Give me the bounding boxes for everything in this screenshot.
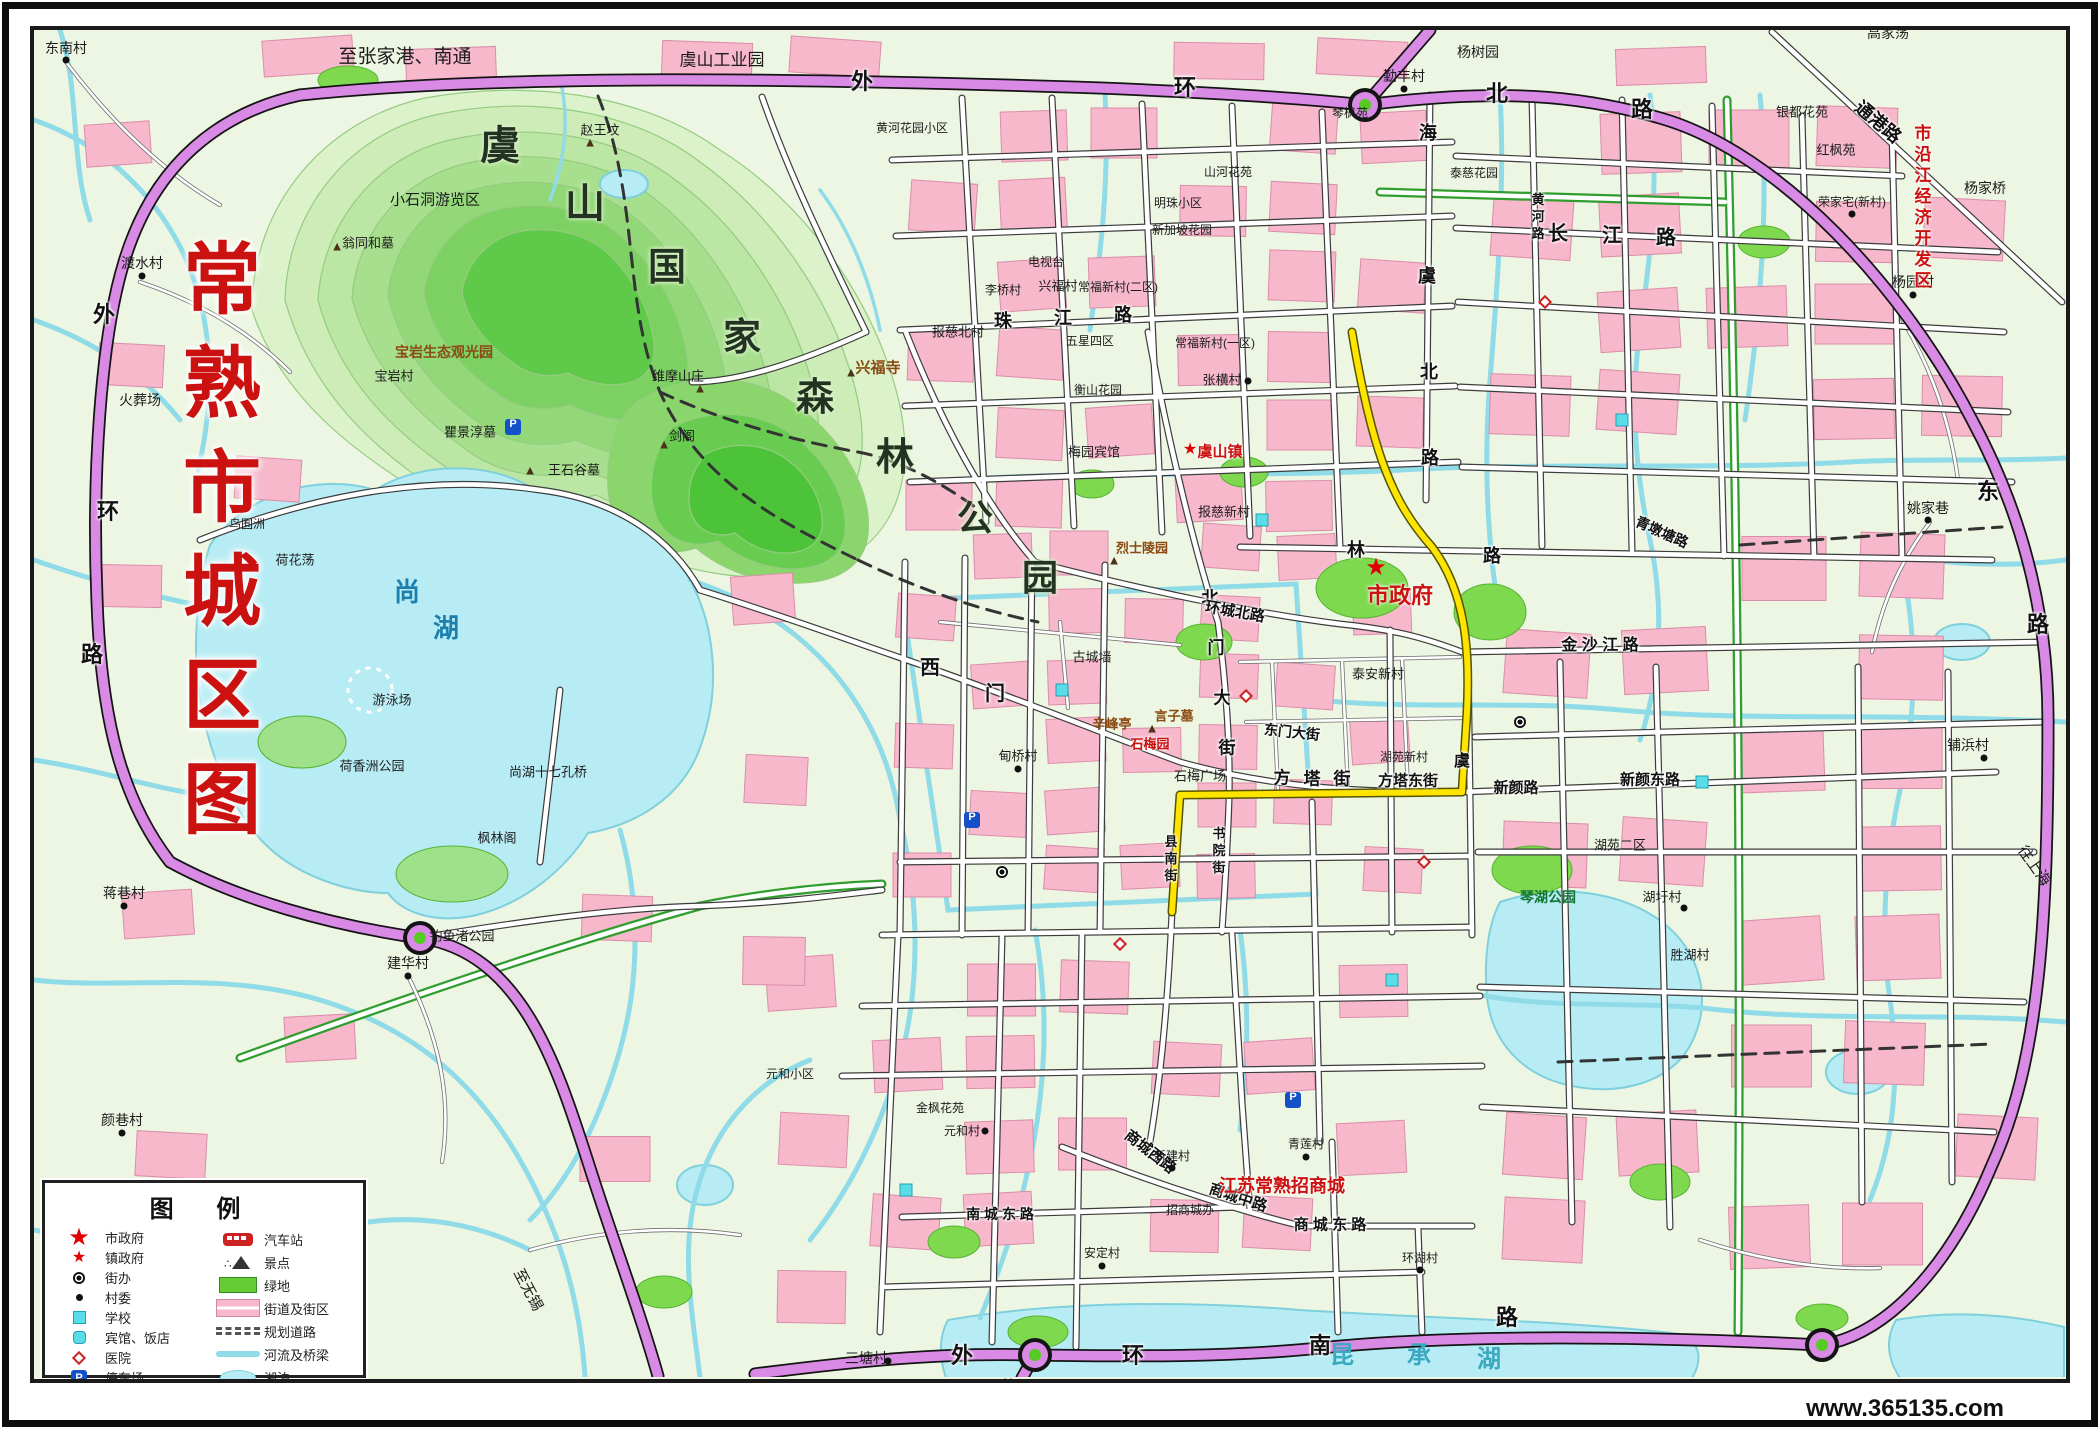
school-icon [73,1311,86,1324]
lake-icon [220,1370,256,1384]
legend-item: 湖泊 [212,1366,363,1383]
legend-icon-cell [53,1272,105,1284]
map-canvas[interactable]: 至张家港、南通虞山工业园东南村高家荡杨树园勤丰村银都花苑红枫苑荣家宅(新村)杨园… [30,26,2070,1383]
legend-label: 街办 [105,1268,131,1287]
legend-item: 街办 [53,1268,204,1287]
legend-box: 图 例 ★市政府★镇政府街办村委学校宾馆、饭店医院P停车场 汽车站景点绿地街道及… [42,1180,366,1378]
legend-label: 绿地 [264,1276,290,1295]
legend-icon-cell [212,1233,264,1246]
map-label: 至苏州 [984,1380,1032,1383]
lake-corner [1889,1314,2064,1378]
legend-icon-cell [212,1277,264,1293]
legend-title: 图 例 [45,1189,363,1224]
bus-icon [223,1233,253,1246]
legend-label: 河流及桥梁 [264,1345,329,1364]
green-icon [219,1277,257,1293]
legend-label: 湖泊 [264,1368,290,1384]
legend-icon-cell [53,1353,105,1363]
map-inner: 至张家港、南通虞山工业园东南村高家荡杨树园勤丰村银都花苑红枫苑荣家宅(新村)杨园… [30,26,2070,1383]
legend-icon-cell [212,1327,264,1335]
legend-item: 宾馆、饭店 [53,1328,204,1347]
legend-item: 河流及桥梁 [212,1343,363,1365]
legend-label: 医院 [105,1348,131,1367]
legend-label: 村委 [105,1288,131,1307]
legend-item: 街道及街区 [212,1297,363,1319]
legend-column-right: 汽车站景点绿地街道及街区规划道路河流及桥梁湖泊 [204,1228,363,1383]
legend-icon-cell [53,1294,105,1301]
legend-icon-cell: P [53,1370,105,1384]
legend-item: 医院 [53,1348,204,1367]
legend-icon-cell [212,1299,264,1317]
office-icon [73,1272,85,1284]
parking-icon: P [71,1370,87,1384]
legend-item: 景点 [212,1251,363,1273]
star-big-icon: ★ [68,1226,90,1250]
dot-icon [76,1294,83,1301]
legend-icon-cell [53,1311,105,1324]
blocks-icon [216,1299,260,1317]
legend-item: 汽车站 [212,1228,363,1250]
legend-icon-cell: ★ [53,1250,105,1266]
star-small-icon: ★ [72,1250,86,1266]
legend-item: 绿地 [212,1274,363,1296]
map-label: 农副产品交易城 [1097,1381,1202,1384]
legend-item: ★镇政府 [53,1248,204,1267]
legend-label: 宾馆、饭店 [105,1328,170,1347]
legend-icon-cell [212,1351,264,1357]
legend-icon-cell [212,1255,264,1269]
hotel-icon [73,1331,86,1344]
legend-label: 停车场 [105,1368,144,1383]
planned-icon [216,1327,260,1335]
legend-label: 市政府 [105,1228,144,1247]
legend-label: 学校 [105,1308,131,1327]
map-page: 至张家港、南通虞山工业园东南村高家荡杨树园勤丰村银都花苑红枫苑荣家宅(新村)杨园… [0,0,2100,1429]
legend-item: 学校 [53,1308,204,1327]
scenic-icon [224,1255,252,1269]
legend-column-left: ★市政府★镇政府街办村委学校宾馆、饭店医院P停车场 [45,1228,204,1383]
watermark: www.365135.com [1806,1395,2004,1423]
legend-label: 规划道路 [264,1322,316,1341]
legend-item: P停车场 [53,1368,204,1383]
legend-icon-cell [212,1370,264,1384]
legend-label: 汽车站 [264,1230,303,1249]
hospital-icon [72,1350,86,1364]
legend-label: 街道及街区 [264,1299,329,1318]
legend-label: 镇政府 [105,1248,144,1267]
legend-item: 村委 [53,1288,204,1307]
map-title: 常熟市城区图 [176,238,254,862]
legend-item: 规划道路 [212,1320,363,1342]
legend-icon-cell [53,1331,105,1344]
legend-item: ★市政府 [53,1228,204,1247]
river-icon [216,1351,260,1357]
legend-icon-cell: ★ [53,1226,105,1250]
legend-label: 景点 [264,1253,290,1272]
